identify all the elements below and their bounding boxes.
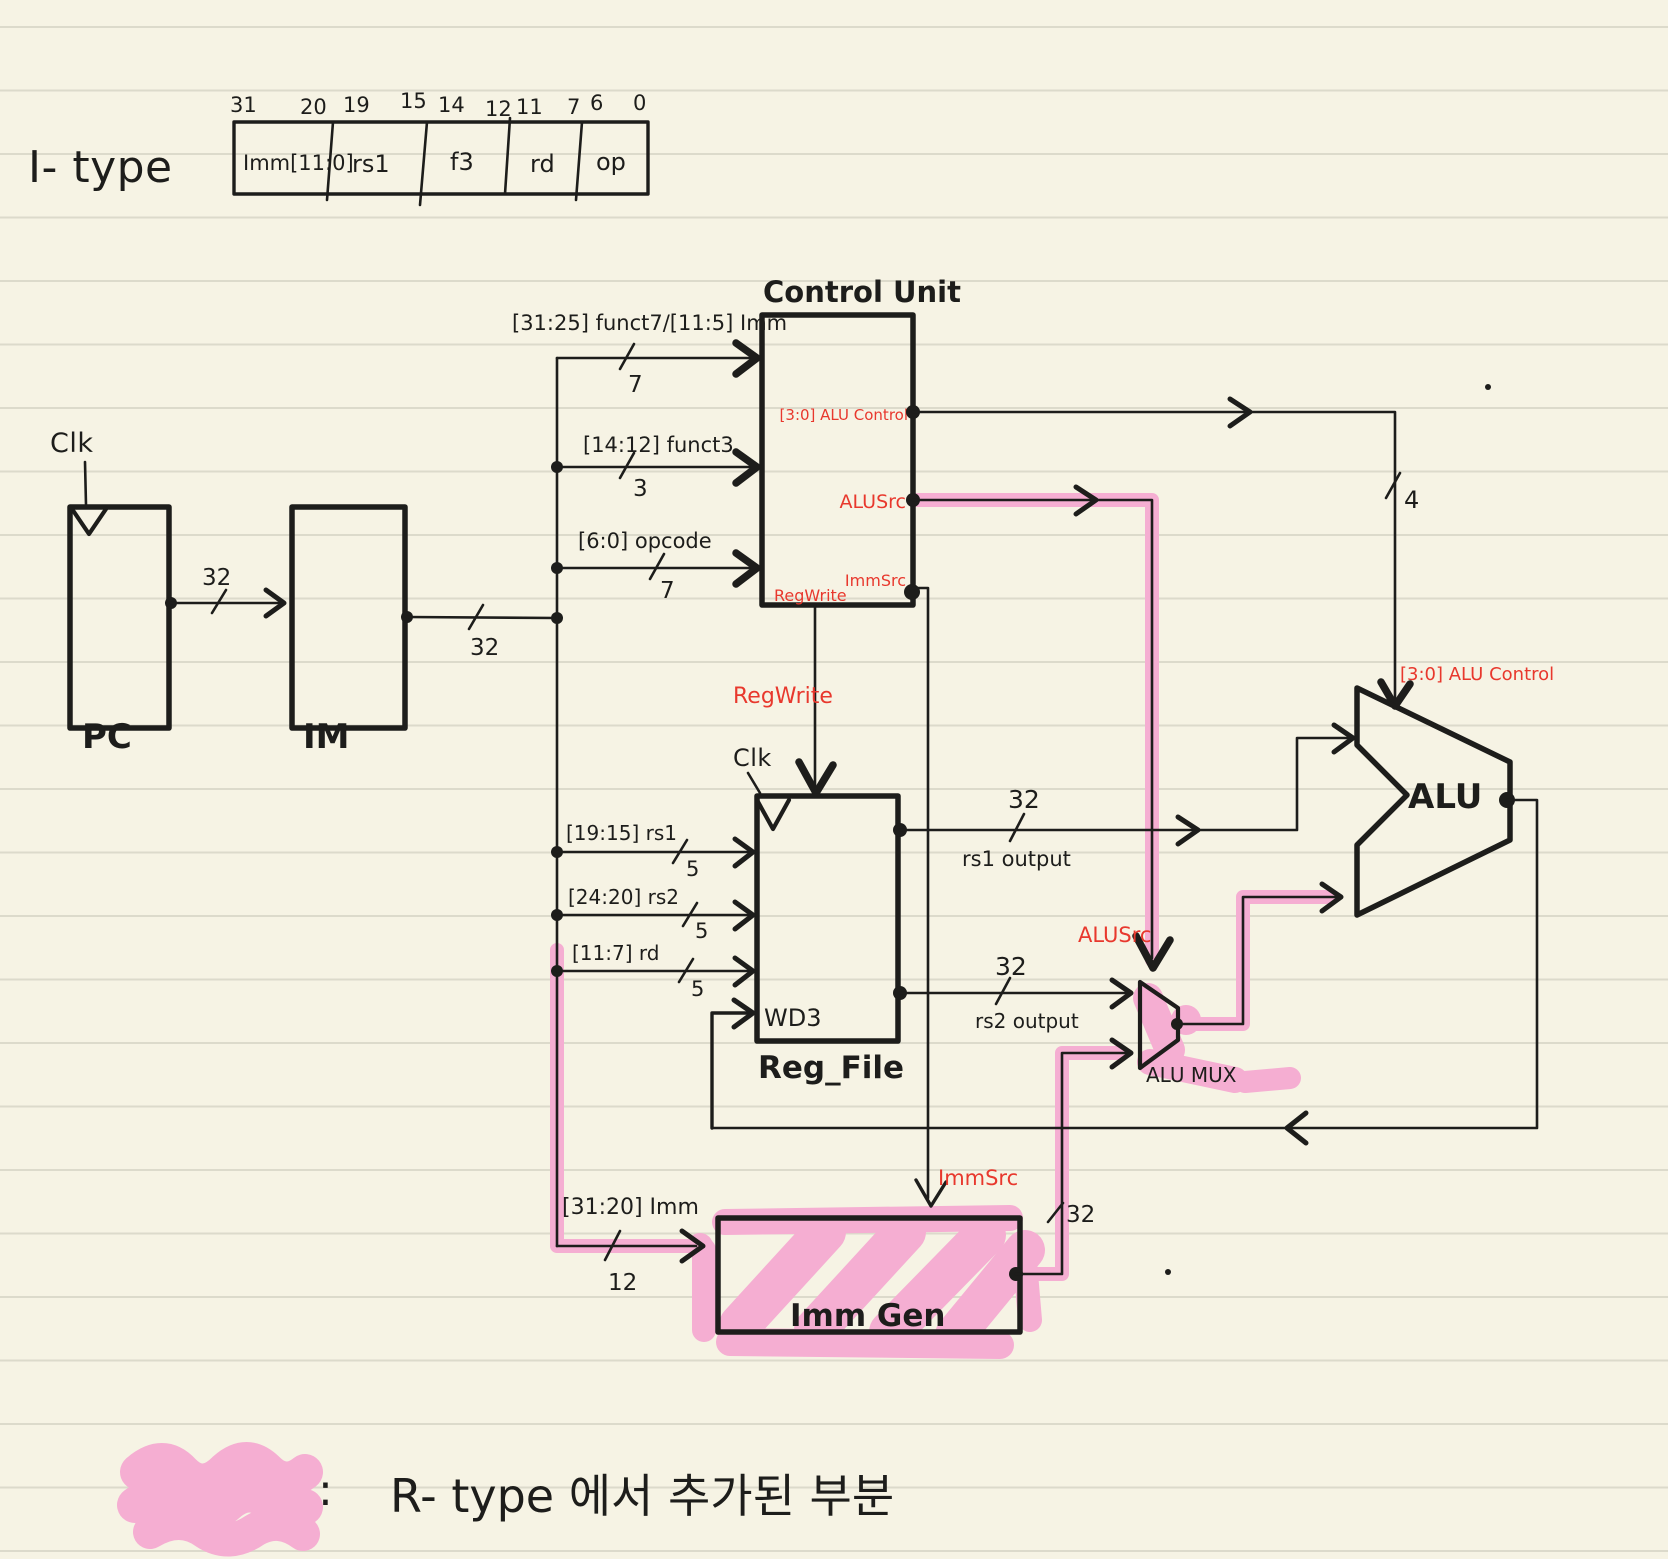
rs2-wire: [24:20] rs2 5 bbox=[551, 885, 753, 943]
wd3-feedback-wire bbox=[712, 1000, 753, 1128]
width-32: 32 bbox=[1066, 1202, 1095, 1228]
bit-label: 15 bbox=[400, 89, 427, 113]
funct3-label: [14:12] funct3 bbox=[583, 433, 734, 457]
immsrc-wire: ImmSrc bbox=[913, 588, 1018, 1206]
rs2-label: [24:20] rs2 bbox=[568, 885, 679, 909]
bit-label: 0 bbox=[633, 91, 646, 115]
legend-colon: : bbox=[318, 1465, 333, 1516]
width-slash bbox=[996, 978, 1010, 1004]
width-slash bbox=[1386, 473, 1400, 498]
alu-control-wire: 4 [3:0] ALU Control bbox=[913, 399, 1554, 706]
alu-control-port-label: [3:0] ALU Control bbox=[780, 406, 908, 424]
width-3: 3 bbox=[633, 476, 648, 502]
width-4: 4 bbox=[1404, 486, 1419, 514]
wire bbox=[712, 1013, 748, 1128]
field-op: op bbox=[596, 148, 626, 176]
imm-label: [31:20] Imm bbox=[562, 1195, 699, 1220]
rd-wire: [11:7] rd 5 bbox=[551, 941, 753, 1001]
wire bbox=[900, 738, 1348, 830]
bit-label: 20 bbox=[300, 95, 327, 119]
width-5: 5 bbox=[686, 857, 699, 881]
alusrc-wire-label: ALUSrc bbox=[1078, 923, 1151, 947]
i-type-label: I- type bbox=[28, 142, 173, 193]
highlight-alusrc bbox=[918, 500, 1152, 960]
format-divider-3 bbox=[505, 118, 510, 194]
bit-label: 12 bbox=[485, 97, 512, 121]
width-slash bbox=[650, 554, 664, 579]
alu-block: ALU bbox=[1357, 688, 1515, 915]
bit-label: 6 bbox=[590, 91, 603, 115]
instruction-format-box: 31 20 19 15 14 12 11 7 6 0 Imm[11:0] rs1… bbox=[230, 89, 648, 205]
width-32: 32 bbox=[202, 565, 231, 591]
stray-dot bbox=[1485, 384, 1491, 390]
width-slash bbox=[1010, 814, 1024, 841]
pc-block: Clk PC bbox=[50, 428, 169, 757]
mux-output-wire bbox=[1178, 884, 1341, 1024]
rs1-wire: [19:15] rs1 5 bbox=[551, 821, 753, 881]
pc-to-im-wire: 32 bbox=[165, 565, 284, 616]
clk-rf-wire bbox=[748, 773, 760, 793]
wire bbox=[407, 617, 557, 618]
rs1-output-wire: 32 rs1 output bbox=[893, 725, 1353, 871]
format-field-labels: Imm[11:0] rs1 f3 rd op bbox=[243, 148, 626, 178]
format-divider-4 bbox=[576, 122, 582, 200]
alu-feedback-wire bbox=[712, 800, 1537, 1143]
control-unit-title: Control Unit bbox=[763, 275, 961, 309]
notebook-page: I- type 31 20 19 15 14 12 11 7 6 0 Imm[1… bbox=[0, 0, 1668, 1559]
bit-label: 11 bbox=[516, 95, 543, 119]
legend-text: R- type 에서 추가된 부분 bbox=[390, 1469, 894, 1523]
clk-wedge-icon bbox=[757, 800, 789, 829]
alusrc-wire: ALUSrc bbox=[913, 487, 1170, 968]
clk-pc-label: Clk bbox=[50, 428, 94, 459]
bit-label: 7 bbox=[567, 95, 580, 119]
wire bbox=[913, 588, 928, 1198]
wire bbox=[1178, 897, 1336, 1024]
regwrite-port-label: RegWrite bbox=[774, 586, 847, 605]
rs2-output-label: rs2 output bbox=[975, 1009, 1079, 1033]
im-box bbox=[292, 507, 405, 728]
reg-file-label: Reg_File bbox=[758, 1050, 904, 1086]
funct3-wire: [14:12] funct3 3 bbox=[551, 433, 757, 502]
width-32: 32 bbox=[470, 635, 499, 661]
alusrc-port-label: ALUSrc bbox=[840, 491, 906, 513]
rd-label: [11:7] rd bbox=[572, 941, 659, 965]
datapath-diagram: I- type 31 20 19 15 14 12 11 7 6 0 Imm[1… bbox=[0, 0, 1668, 1559]
funct7-label: [31:25] funct7/[11:5] Imm bbox=[512, 311, 787, 335]
width-12: 12 bbox=[608, 1270, 637, 1296]
im-block: IM bbox=[292, 507, 405, 757]
clk-wedge-icon bbox=[72, 509, 106, 534]
width-slash bbox=[212, 590, 226, 613]
opcode-label: [6:0] opcode bbox=[578, 529, 712, 553]
imm-gen-label: Imm Gen bbox=[790, 1298, 945, 1334]
funct7-wire: [31:25] funct7/[11:5] Imm 7 bbox=[512, 311, 787, 398]
clk-pc-wire bbox=[85, 462, 86, 505]
rs1-output-label: rs1 output bbox=[962, 847, 1071, 871]
control-unit-box bbox=[762, 315, 913, 605]
legend-swatch bbox=[135, 1460, 305, 1540]
bit-label: 14 bbox=[438, 93, 465, 117]
wd3-label: WD3 bbox=[764, 1004, 821, 1032]
width-7: 7 bbox=[628, 372, 643, 398]
width-7: 7 bbox=[660, 578, 675, 604]
wire bbox=[913, 500, 1152, 958]
reg-file-block: Clk WD3 Reg_File bbox=[733, 744, 904, 1086]
immsrc-port-dot bbox=[904, 584, 920, 600]
field-rs1: rs1 bbox=[352, 150, 390, 178]
legend: : R- type 에서 추가된 부분 bbox=[318, 1465, 894, 1523]
field-f3: f3 bbox=[450, 148, 474, 176]
im-label: IM bbox=[303, 717, 349, 757]
alu-label: ALU bbox=[1408, 777, 1482, 817]
width-slash bbox=[620, 344, 634, 369]
width-32: 32 bbox=[1008, 785, 1040, 814]
immsrc-port-label: ImmSrc bbox=[845, 571, 906, 590]
width-5: 5 bbox=[695, 919, 708, 943]
highlight-mux-out bbox=[1180, 897, 1333, 1024]
alu-mux-label: ALU MUX bbox=[1146, 1063, 1237, 1087]
format-bit-labels: 31 20 19 15 14 12 11 7 6 0 bbox=[230, 89, 646, 121]
immsrc-wire-label: ImmSrc bbox=[938, 1166, 1018, 1190]
stray-dot bbox=[1165, 1269, 1171, 1275]
clk-rf-label: Clk bbox=[733, 744, 772, 772]
bit-label: 31 bbox=[230, 93, 257, 117]
field-imm: Imm[11:0] bbox=[243, 151, 354, 175]
width-32: 32 bbox=[995, 952, 1027, 981]
pc-box bbox=[70, 507, 169, 728]
bit-label: 19 bbox=[343, 93, 370, 117]
regwrite-wire-label: RegWrite bbox=[733, 684, 833, 709]
opcode-wire: [6:0] opcode 7 bbox=[551, 529, 757, 604]
rs1-label: [19:15] rs1 bbox=[566, 821, 677, 845]
im-out-wire: 32 bbox=[401, 605, 563, 661]
width-5: 5 bbox=[691, 977, 704, 1001]
imm-wire: [31:20] Imm 12 bbox=[557, 1195, 703, 1296]
control-unit-block: Control Unit [3:0] ALU Control ALUSrc Im… bbox=[762, 275, 961, 605]
field-rd: rd bbox=[530, 150, 555, 178]
pc-label: PC bbox=[82, 717, 132, 757]
alu-control-wire-label: [3:0] ALU Control bbox=[1400, 664, 1554, 685]
